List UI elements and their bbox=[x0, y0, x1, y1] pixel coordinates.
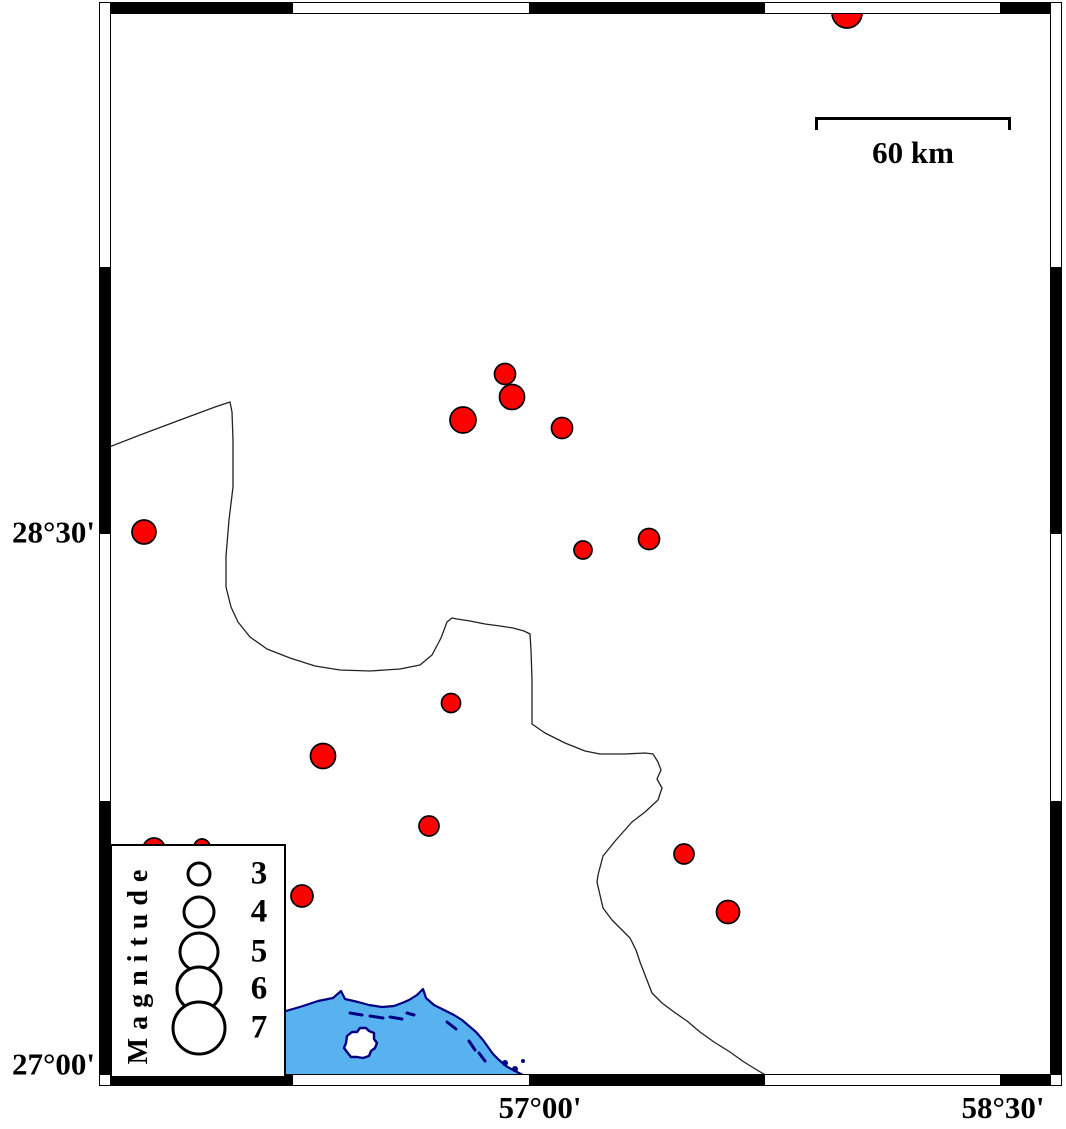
legend-magnitude-value: 3 bbox=[230, 858, 288, 891]
coast-dash bbox=[407, 1013, 414, 1015]
epicenter-marker bbox=[132, 520, 156, 544]
islet bbox=[521, 1059, 525, 1063]
sea-area bbox=[250, 989, 530, 1080]
epicenter-marker bbox=[717, 901, 740, 924]
scale-bar-label: 60 km bbox=[815, 135, 1011, 171]
longitude-label: 58°30' bbox=[961, 1092, 1044, 1123]
epicenter-marker bbox=[552, 418, 573, 439]
epicenter-marker bbox=[419, 816, 439, 836]
legend-magnitude-circle bbox=[173, 1002, 225, 1054]
magnitude-legend: Magnitude 34567 bbox=[110, 844, 286, 1078]
coast-dash bbox=[390, 1017, 402, 1019]
epicenter-marker bbox=[291, 885, 313, 907]
scale-bar-bracket bbox=[815, 117, 1011, 130]
coast-dash bbox=[350, 1013, 362, 1015]
islet bbox=[502, 1060, 508, 1066]
epicenter-marker bbox=[495, 364, 516, 385]
epicenter-marker bbox=[832, 0, 862, 28]
epicenter-marker bbox=[574, 541, 592, 559]
epicenter-marker bbox=[442, 694, 461, 713]
epicenter-marker bbox=[639, 529, 660, 550]
legend-magnitude-value: 4 bbox=[230, 896, 288, 929]
coast-dash bbox=[370, 1016, 383, 1018]
legend-magnitude-value: 6 bbox=[230, 973, 288, 1006]
legend-magnitude-value: 5 bbox=[230, 936, 288, 969]
epicenter-marker bbox=[450, 407, 476, 433]
epicenter-marker bbox=[500, 385, 525, 410]
legend-magnitude-circle bbox=[188, 863, 210, 885]
epicenter-marker bbox=[674, 844, 694, 864]
legend-magnitude-circle bbox=[184, 897, 214, 927]
legend-magnitude-value: 7 bbox=[230, 1012, 288, 1045]
legend-magnitude-circle bbox=[180, 933, 218, 971]
longitude-label: 57°00' bbox=[498, 1092, 581, 1123]
latitude-label: 27°00' bbox=[0, 1049, 95, 1080]
earthquake-map: 28°30'27°00'57°00'58°30' 60 km Magnitude… bbox=[0, 0, 1066, 1129]
islet bbox=[512, 1066, 518, 1072]
latitude-label: 28°30' bbox=[0, 517, 95, 548]
epicenter-marker bbox=[311, 744, 336, 769]
